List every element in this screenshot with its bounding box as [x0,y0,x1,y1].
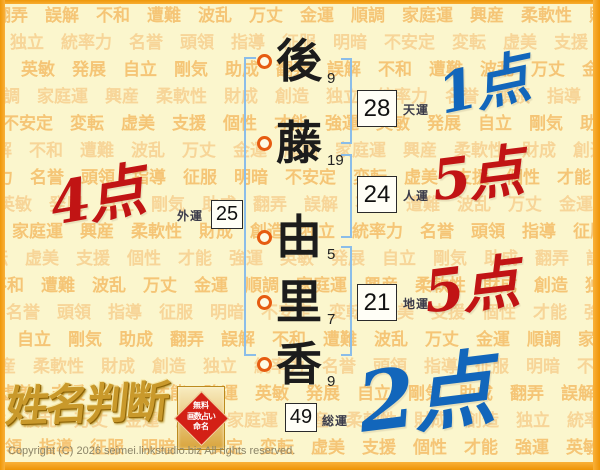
stroke-count: 7 [327,311,335,328]
outer-fortune-score: 4点 [46,160,147,233]
heaven-fortune-value: 28 [357,90,397,127]
kanji-character: 藤 [276,120,328,166]
outer-fortune-label: 外運 [177,207,203,224]
marker-circle-icon [257,357,272,372]
copyright-text: Copyright (C) 2026 seimei.linkstudio.biz… [8,445,295,457]
outer-fortune-bracket [244,57,246,356]
seal-text: 無料 画数占い 命名 [178,401,224,432]
kanji-character: 里 [276,279,328,325]
frame-border-right [593,0,600,470]
person-fortune-label: 人運 [403,187,429,204]
name-character-2: 藤 19 [276,120,328,166]
bracket-tick [341,58,352,60]
bracket-tick [245,57,256,59]
heaven-fortune-score: 1点 [433,49,532,122]
site-logo[interactable]: 姓名判断 [3,381,168,430]
frame-border-top [0,0,600,4]
seal-line-1: 無料 [178,401,224,411]
outer-fortune-value: 25 [211,200,243,229]
stroke-count: 9 [327,70,335,87]
seal-line-3: 命名 [178,422,224,432]
stroke-count: 5 [327,246,335,263]
total-fortune-label: 総運 [322,412,348,429]
bracket-tick [341,354,352,356]
free-naming-seal: 無料 画数占い 命名 [177,386,225,450]
person-fortune-bracket [350,154,352,238]
bracket-tick [341,246,352,248]
stroke-count: 9 [327,373,335,390]
heaven-fortune-bracket [350,58,352,144]
earth-fortune-score: 5点 [421,253,520,322]
kanji-character: 由 [276,214,328,260]
stroke-count: 19 [327,152,344,169]
name-character-4: 里 7 [276,279,328,325]
marker-circle-icon [257,54,272,69]
frame-border-bottom [0,462,600,470]
name-character-3: 由 5 [276,214,328,260]
name-character-1: 後 9 [276,38,328,84]
seimei-handan-result-page: 翻弄 誤解 不和 遭難 波乱 万丈 金運 順調 家庭運 興産 柔軟性 財成 創造… [0,0,600,470]
bracket-tick [341,236,352,238]
person-fortune-score: 5点 [429,143,524,209]
earth-fortune-bracket [350,246,352,356]
earth-fortune-value: 21 [357,284,397,321]
kanji-character: 香 [276,341,328,387]
kanji-character: 後 [276,38,328,84]
person-fortune-value: 24 [357,176,397,213]
heaven-fortune-label: 天運 [403,101,429,118]
bracket-tick [245,354,256,356]
seal-line-2: 画数占い [178,411,224,422]
marker-circle-icon [257,136,272,151]
total-fortune-value: 49 [285,403,317,432]
frame-border-left [0,0,5,470]
marker-circle-icon [257,295,272,310]
marker-circle-icon [257,230,272,245]
name-character-5: 香 9 [276,341,328,387]
bracket-tick [341,142,352,144]
total-fortune-score: 2点 [353,347,495,445]
